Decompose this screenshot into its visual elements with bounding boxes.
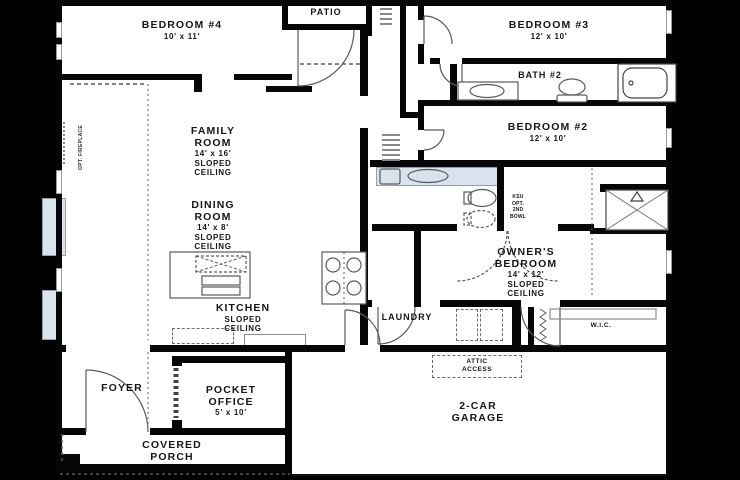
label-line: LAUNDRY [382,312,433,322]
room-name: PATIO [310,7,341,17]
room-label-laundry: LAUNDRY [382,312,433,322]
wall-segment [372,224,457,231]
label-line: 14' x 16' [191,149,235,159]
label-line: BATH #2 [518,70,562,80]
window [666,250,672,274]
label-line: KSU [510,194,526,201]
label-line: CEILING [191,242,234,252]
wall-segment [380,345,672,352]
label-opt-fireplace: OPT. FIREPLACE [78,118,84,170]
room-name: 2-CARGARAGE [452,401,505,424]
room-dims: 12' x 10' [508,134,588,144]
label-line: ATTIC [462,358,492,366]
wall-segment [172,356,182,366]
floor-plan: BEDROOM #4 10' x 11' PATIO BEDROOM #3 12… [0,0,740,480]
label-line: OFFICE [206,397,256,409]
room-dims: 10' x 11' [142,32,222,42]
wall-segment [282,24,372,30]
wall-segment [180,356,285,363]
wall-segment [370,160,672,167]
label-line: 14' x 12' [495,270,558,280]
label-line: FAMILY [191,126,235,138]
wall-segment [560,300,672,307]
label-line: PORCH [142,452,202,464]
label-ksu-opt-2nd-bowl: KSUOPT.2NDBOWL [510,194,526,220]
label-line: SLOPED [191,233,234,243]
room-label-bedroom2: BEDROOM #2 12' x 10' [508,122,588,143]
label-line: BEDROOM #3 [509,20,589,32]
room-name: BEDROOM #2 [508,122,588,134]
label-line: BEDROOM #2 [508,122,588,134]
wall-segment [56,0,62,470]
label-line: BEDROOM #4 [142,20,222,32]
wall-segment [56,345,66,352]
room-label-wic: W.I.C. [591,322,612,330]
label-line: DINING [191,200,234,212]
room-dims: 5' x 10' [206,408,256,418]
wall-segment [234,74,292,80]
label-line: CEILING [495,289,558,299]
wall-segment [430,58,440,64]
label-line: OWNER'S [495,247,558,259]
label-line: ACCESS [462,366,492,374]
label-line: SLOPED [216,315,270,325]
label-line: 10' x 11' [142,32,222,42]
room-dims: 14' x 16'SLOPEDCEILING [191,149,235,178]
room-name: POCKETOFFICE [206,385,256,408]
owners-vanity-counter [376,167,500,186]
wall-segment [56,428,86,435]
room-label-family: FAMILYROOM 14' x 16'SLOPEDCEILING [191,126,235,178]
room-label-covered-porch: COVEREDPORCH [142,440,202,463]
opt-fireplace-bay [42,198,66,256]
room-dims: 14' x 8'SLOPEDCEILING [191,223,234,252]
wall-segment [150,428,286,435]
wall-segment [418,100,672,106]
label-line: CEILING [216,324,270,334]
label-line: SLOPED [495,280,558,290]
washer [456,309,478,341]
label-line: POCKET [206,385,256,397]
room-name: OWNER'SBEDROOM [495,247,558,270]
window [56,170,62,194]
wall-segment [414,231,421,307]
wall-segment [194,74,202,92]
label-line: KITCHEN [216,303,270,315]
label-line: COVERED [142,440,202,452]
wall-segment [56,464,290,472]
label-line: 5' x 10' [206,408,256,418]
room-label-kitchen: KITCHEN SLOPEDCEILING [216,303,270,334]
window [56,22,62,38]
label-line: CEILING [191,168,235,178]
room-name: LAUNDRY [382,312,433,322]
window [666,10,672,34]
room-name: BEDROOM #4 [142,20,222,32]
room-name: COVEREDPORCH [142,440,202,463]
label-line: ROOM [191,212,234,224]
room-name: FAMILYROOM [191,126,235,149]
wall-segment [364,300,372,307]
wall-segment [285,345,292,476]
wall-segment [450,64,457,100]
room-dims: 12' x 10' [509,32,589,42]
wall-segment [418,0,424,20]
wall-segment [462,58,672,64]
label-line: W.I.C. [591,322,612,330]
wall-segment [558,224,594,231]
room-label-owners: OWNER'SBEDROOM 14' x 12'SLOPEDCEILING [495,247,558,299]
room-name: FOYER [101,383,143,395]
label-line: BEDROOM [495,259,558,271]
label-line: PATIO [310,7,341,17]
wall-segment [56,0,672,6]
label-line: SLOPED [191,159,235,169]
label-line: 12' x 10' [509,32,589,42]
room-label-pocket-office: POCKETOFFICE 5' x 10' [206,385,256,418]
label-line: 14' x 8' [191,223,234,233]
wall-segment [528,307,534,347]
room-label-dining: DININGROOM 14' x 8'SLOPEDCEILING [191,200,234,252]
label-line: 12' x 10' [508,134,588,144]
room-label-patio: PATIO [310,7,341,17]
room-name: DININGROOM [191,200,234,223]
room-name: BATH #2 [518,70,562,80]
label-line: GARAGE [452,413,505,425]
window [56,268,62,292]
wall-segment [266,86,312,92]
wall-segment [418,44,424,64]
room-label-bedroom4: BEDROOM #4 10' x 11' [142,20,222,41]
label-line: FOYER [101,383,143,395]
label-line: 2-CAR [452,401,505,413]
room-name: KITCHEN [216,303,270,315]
room-label-garage: 2-CARGARAGE [452,401,505,424]
room-name: BEDROOM #3 [509,20,589,32]
label-line: ROOM [191,138,235,150]
dryer [480,309,503,341]
room-label-attic-access: ATTICACCESS [462,358,492,373]
window [666,128,672,148]
wall-segment [360,128,368,345]
wall-segment [285,345,345,352]
plan-paper-garage [285,466,672,476]
wall-segment [418,106,424,130]
wall-segment [400,0,406,118]
room-label-foyer: FOYER [101,383,143,395]
room-label-bath2: BATH #2 [518,70,562,80]
wall-segment [58,454,80,466]
wall-segment [600,184,672,192]
room-name: W.I.C. [591,322,612,330]
window [56,44,62,60]
wall-segment [590,228,672,234]
wall-segment [497,160,504,231]
wall-segment [512,307,521,347]
room-name: ATTICACCESS [462,358,492,373]
wall-segment [360,30,368,96]
room-dims: 14' x 12'SLOPEDCEILING [495,270,558,299]
wall-segment [440,300,521,307]
wall-segment [150,345,285,352]
room-dims: SLOPEDCEILING [216,315,270,334]
room-label-bedroom3: BEDROOM #3 12' x 10' [509,20,589,41]
option-note: KSUOPT.2NDBOWL [510,194,526,220]
label-line: BOWL [510,214,526,221]
wall-segment [56,74,196,80]
wall-segment [666,0,672,476]
